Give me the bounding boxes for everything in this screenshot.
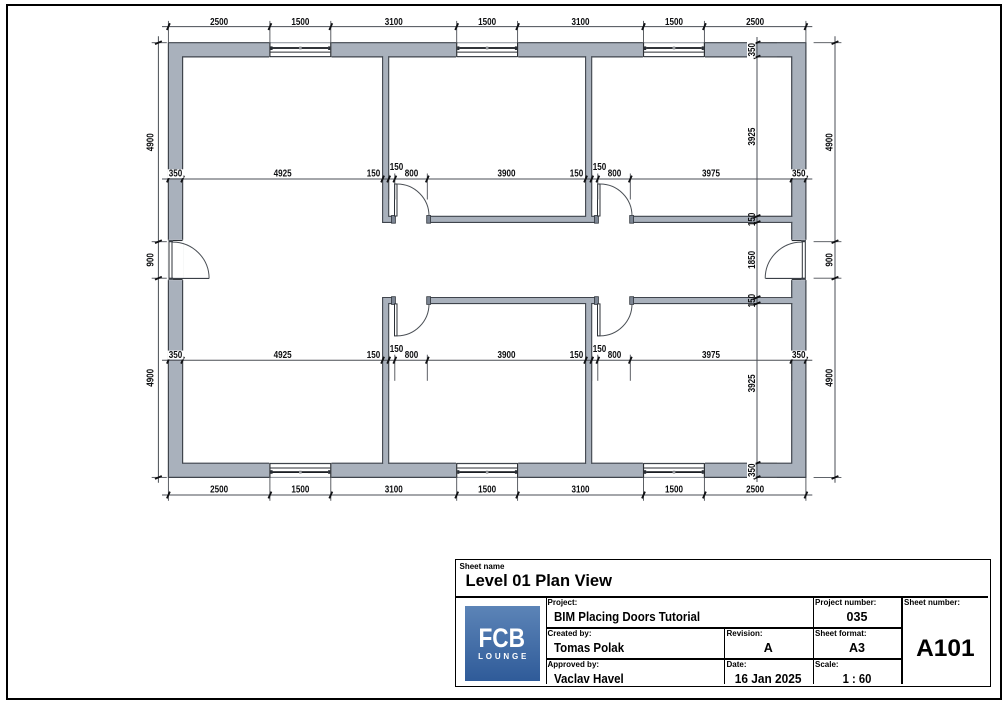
svg-text:150: 150	[390, 162, 404, 173]
svg-text:3100: 3100	[385, 17, 403, 28]
svg-text:2500: 2500	[746, 484, 764, 495]
svg-text:150: 150	[570, 169, 584, 180]
svg-text:1500: 1500	[478, 17, 496, 28]
svg-text:150: 150	[593, 162, 607, 173]
svg-text:2500: 2500	[210, 484, 228, 495]
svg-text:800: 800	[608, 350, 622, 361]
svg-text:1500: 1500	[291, 17, 309, 28]
svg-text:3975: 3975	[702, 169, 721, 180]
svg-text:3925: 3925	[747, 374, 758, 393]
svg-text:4900: 4900	[145, 133, 156, 151]
svg-text:1500: 1500	[291, 484, 309, 495]
svg-text:150: 150	[570, 350, 584, 361]
svg-text:150: 150	[367, 350, 381, 361]
svg-text:800: 800	[405, 169, 419, 180]
svg-text:150: 150	[747, 294, 758, 308]
svg-text:4900: 4900	[145, 369, 156, 387]
svg-text:350: 350	[169, 169, 183, 180]
svg-text:1850: 1850	[747, 251, 758, 269]
svg-text:1500: 1500	[665, 17, 683, 28]
svg-text:4925: 4925	[274, 169, 293, 180]
svg-text:4900: 4900	[824, 133, 835, 151]
svg-text:3900: 3900	[498, 350, 516, 361]
svg-text:900: 900	[145, 253, 156, 267]
svg-text:3100: 3100	[572, 484, 590, 495]
svg-text:2500: 2500	[210, 17, 228, 28]
svg-text:3100: 3100	[385, 484, 403, 495]
svg-text:3925: 3925	[747, 127, 758, 146]
svg-text:1500: 1500	[478, 484, 496, 495]
svg-text:350: 350	[792, 169, 806, 180]
svg-text:900: 900	[824, 253, 835, 267]
svg-text:2500: 2500	[746, 17, 764, 28]
svg-text:150: 150	[367, 169, 381, 180]
svg-text:350: 350	[169, 350, 183, 361]
svg-text:4900: 4900	[824, 369, 835, 387]
svg-text:350: 350	[747, 464, 758, 478]
svg-text:150: 150	[390, 344, 404, 355]
svg-text:3900: 3900	[498, 169, 516, 180]
svg-text:350: 350	[792, 350, 806, 361]
svg-text:350: 350	[747, 43, 758, 57]
svg-text:4925: 4925	[274, 350, 293, 361]
svg-text:150: 150	[747, 213, 758, 227]
svg-text:3975: 3975	[702, 350, 721, 361]
svg-text:800: 800	[608, 169, 622, 180]
svg-text:1500: 1500	[665, 484, 683, 495]
svg-text:150: 150	[593, 344, 607, 355]
svg-text:800: 800	[405, 350, 419, 361]
svg-text:3100: 3100	[572, 17, 590, 28]
